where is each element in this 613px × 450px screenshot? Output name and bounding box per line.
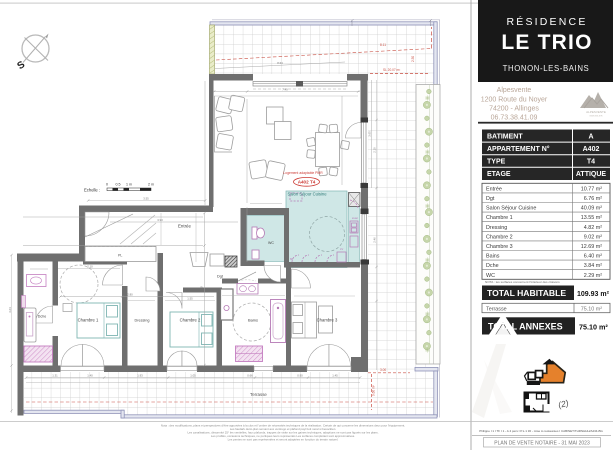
svg-text:Terrasse: Terrasse (486, 306, 507, 312)
svg-text:Dgt: Dgt (217, 275, 224, 279)
svg-text:A402: A402 (583, 146, 600, 153)
svg-text:0.90: 0.90 (297, 374, 303, 378)
svg-text:Echelle :: Echelle : (84, 188, 100, 193)
svg-text:1.45: 1.45 (332, 374, 338, 378)
svg-text:9.60 m²: 9.60 m² (372, 385, 376, 396)
svg-text:1200 Route du Noyer: 1200 Route du Noyer (481, 97, 548, 104)
svg-text:RÉSIDENCE: RÉSIDENCE (506, 15, 587, 28)
svg-text:WC: WC (268, 241, 274, 245)
svg-text:1 m: 1 m (126, 183, 132, 187)
svg-text:3.55: 3.55 (143, 197, 149, 201)
svg-text:LV: LV (340, 247, 343, 251)
svg-text:75.10 m²: 75.10 m² (579, 323, 608, 332)
svg-text:74200 - Allinges: 74200 - Allinges (489, 106, 539, 113)
svg-text:évier: évier (352, 216, 358, 220)
svg-text:Dressing: Dressing (486, 225, 507, 231)
svg-text:0.66: 0.66 (247, 374, 253, 378)
svg-text:ATTIQUE: ATTIQUE (576, 171, 607, 178)
svg-text:3.93: 3.93 (157, 218, 163, 222)
svg-text:Bains: Bains (248, 318, 258, 323)
svg-text:Bains: Bains (486, 254, 500, 260)
svg-text:3.64: 3.64 (8, 307, 12, 313)
svg-text:2.80: 2.80 (127, 293, 133, 297)
svg-text:TYPE: TYPE (487, 159, 506, 166)
svg-text:3.00: 3.00 (380, 368, 386, 372)
svg-text:Chambre 3: Chambre 3 (486, 244, 513, 250)
svg-text:0: 0 (106, 183, 108, 187)
svg-text:2.10: 2.10 (373, 147, 377, 153)
svg-text:8.64: 8.64 (277, 61, 283, 65)
svg-text:2.50: 2.50 (411, 56, 415, 62)
svg-text:SL 20.07 m²: SL 20.07 m² (383, 68, 400, 72)
svg-text:Chambre 1: Chambre 1 (486, 215, 513, 221)
svg-text:BATIMENT: BATIMENT (487, 134, 523, 141)
svg-text:Salon Séjour Cuisine: Salon Séjour Cuisine (287, 192, 327, 197)
svg-text:APPARTEMENT N°: APPARTEMENT N° (487, 145, 550, 153)
svg-text:9.02 m²: 9.02 m² (584, 234, 602, 240)
svg-text:A: A (588, 134, 593, 141)
svg-text:Dgt: Dgt (486, 196, 495, 202)
svg-text:3.84 m²: 3.84 m² (584, 263, 602, 269)
svg-text:60: 60 (290, 257, 294, 261)
svg-text:ETAGE: ETAGE (487, 171, 511, 178)
svg-text:Chambre 2: Chambre 2 (180, 318, 201, 323)
svg-text:Les pentes ne sont pas représe: Les pentes ne sont pas représentées et s… (228, 438, 339, 442)
svg-text:1.31: 1.31 (52, 374, 58, 378)
svg-text:Salon Séjour Cuisine: Salon Séjour Cuisine (486, 206, 536, 212)
svg-text:12.69 m²: 12.69 m² (581, 244, 602, 250)
svg-text:IMMOBILIER: IMMOBILIER (590, 116, 603, 118)
svg-text:3.65: 3.65 (368, 131, 372, 137)
svg-text:Dressing: Dressing (135, 319, 150, 323)
svg-text:A402 T4: A402 T4 (298, 180, 316, 185)
svg-text:Terrasse: Terrasse (250, 392, 267, 397)
svg-text:LE TRIO: LE TRIO (501, 31, 592, 54)
svg-text:2.46: 2.46 (373, 237, 377, 243)
svg-text:109.93 m²: 109.93 m² (577, 291, 610, 298)
svg-text:40.09 m²: 40.09 m² (581, 206, 602, 212)
svg-text:Entrée: Entrée (486, 186, 502, 192)
svg-text:06.73.38.41.09: 06.73.38.41.09 (491, 115, 538, 122)
svg-text:1.55: 1.55 (187, 297, 193, 301)
svg-text:Chambre 3: Chambre 3 (317, 318, 338, 323)
svg-text:PLAN DE VENTE NOTAIRE - 31 MAI: PLAN DE VENTE NOTAIRE - 31 MAI 2023 (494, 440, 590, 446)
svg-text:1.05: 1.05 (190, 374, 196, 378)
svg-text:8.11: 8.11 (380, 43, 386, 47)
svg-text:T4: T4 (587, 159, 595, 166)
svg-text:Dche: Dche (38, 315, 46, 319)
svg-text:Alpesvente: Alpesvente (497, 87, 532, 94)
svg-text:Philippe I 1 I TF I 1 - A 4: Philippe I 1 I TF I 1 - A 4 pers I P.L.1… (479, 429, 603, 433)
svg-text:1.40: 1.40 (87, 374, 93, 378)
svg-text:6.40 m²: 6.40 m² (584, 254, 602, 260)
svg-text:PL: PL (118, 254, 122, 258)
svg-text:75.10 m²: 75.10 m² (581, 306, 602, 312)
svg-text:TOTAL HABITABLE: TOTAL HABITABLE (487, 288, 566, 298)
svg-text:4.82 m²: 4.82 m² (584, 225, 602, 231)
svg-text:THONON-LES-BAINS: THONON-LES-BAINS (503, 64, 590, 73)
svg-text:WC: WC (486, 273, 495, 279)
svg-text:0.5: 0.5 (116, 183, 121, 187)
svg-text:1.93: 1.93 (137, 374, 143, 378)
svg-text:Dche: Dche (486, 263, 499, 269)
svg-text:Chambre 1: Chambre 1 (78, 318, 99, 323)
svg-text:2 m: 2 m (148, 183, 154, 187)
svg-text:2.29 m²: 2.29 m² (584, 273, 602, 279)
svg-text:6.76 m²: 6.76 m² (584, 196, 602, 202)
svg-text:5.08: 5.08 (200, 286, 204, 292)
svg-text:13.55 m²: 13.55 m² (581, 215, 602, 221)
svg-text:NOTA : les surfaces concernent: NOTA : les surfaces concernent l'intérie… (485, 280, 560, 284)
svg-text:10.77 m²: 10.77 m² (581, 186, 602, 192)
svg-text:Chambre 2: Chambre 2 (486, 234, 513, 240)
svg-text:7.49: 7.49 (282, 88, 288, 92)
svg-text:2.10: 2.10 (87, 265, 93, 269)
svg-text:ALPESVENTE: ALPESVENTE (586, 110, 606, 114)
svg-text:Logement adaptable PMR: Logement adaptable PMR (283, 171, 323, 175)
svg-text:Entrée: Entrée (178, 224, 191, 229)
